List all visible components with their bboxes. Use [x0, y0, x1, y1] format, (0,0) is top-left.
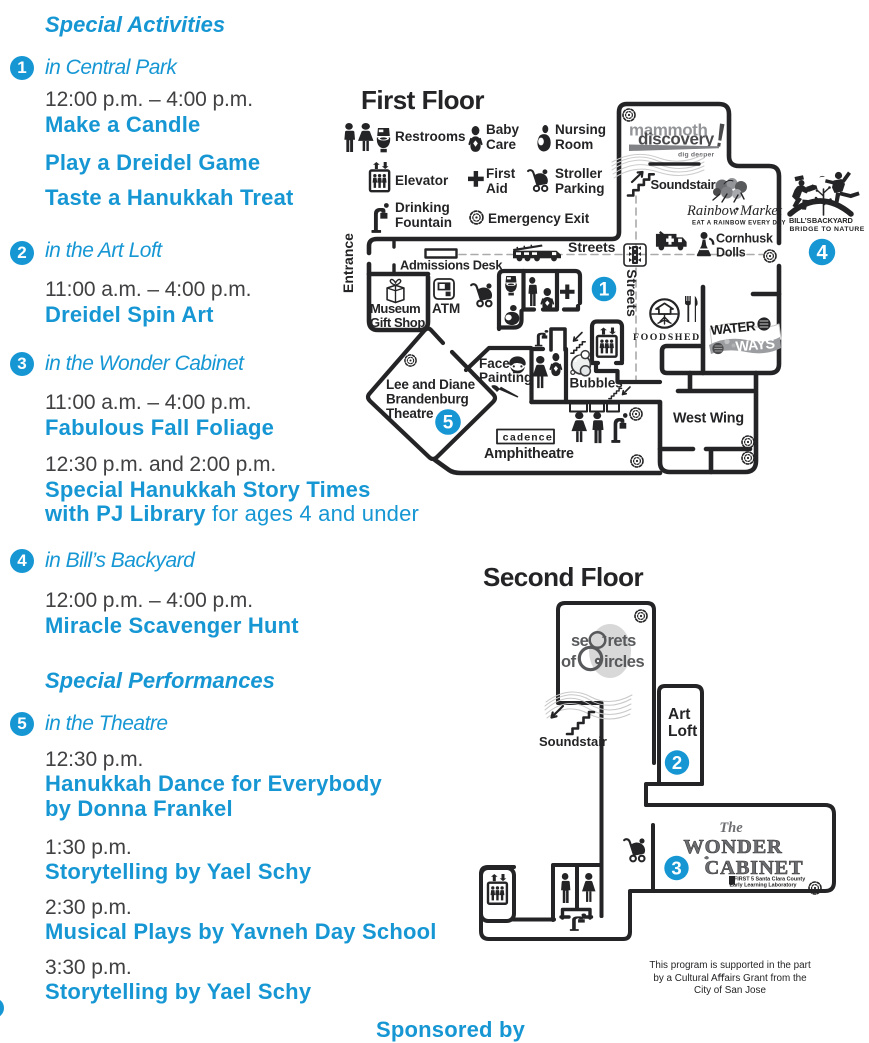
svg-text:Bubbles: Bubbles	[570, 376, 623, 391]
svg-text:of: of	[561, 653, 577, 671]
svg-text:FOODSHED: FOODSHED	[633, 332, 701, 343]
svg-text:ATM: ATM	[432, 301, 460, 316]
svg-text:Loft: Loft	[668, 723, 697, 740]
svg-text:Parking: Parking	[555, 181, 605, 196]
svg-text:Fountain: Fountain	[395, 215, 452, 230]
svg-text:Nursing: Nursing	[555, 122, 606, 137]
svg-text:Face: Face	[479, 356, 510, 371]
svg-text:Lee and Diane: Lee and Diane	[386, 377, 476, 392]
svg-text:cadence: cadence	[503, 433, 553, 445]
svg-text:2: 2	[672, 752, 682, 773]
svg-text:West Wing: West Wing	[673, 411, 744, 427]
svg-text:rets: rets	[608, 632, 637, 650]
svg-text:Elevator: Elevator	[395, 173, 449, 188]
svg-text:Streets: Streets	[568, 239, 616, 255]
svg-text:Aid: Aid	[486, 181, 508, 196]
svg-text:Soundstair: Soundstair	[651, 177, 716, 192]
svg-text:EAT A RAINBOW EVERY DAY: EAT A RAINBOW EVERY DAY	[692, 221, 786, 227]
svg-text:Market: Market	[739, 203, 783, 219]
svg-text:BRIDGE TO NATURE: BRIDGE TO NATURE	[790, 226, 865, 233]
svg-text:Baby: Baby	[486, 122, 520, 137]
svg-text:Emergency Exit: Emergency Exit	[488, 211, 590, 226]
svg-text:Early Learning Laboratory: Early Learning Laboratory	[729, 883, 796, 889]
svg-text:The: The	[719, 820, 743, 836]
svg-text:Cornhusk: Cornhusk	[716, 232, 773, 246]
svg-text:3: 3	[671, 858, 681, 879]
svg-text:Entrance: Entrance	[340, 233, 356, 293]
svg-text:Rainbow: Rainbow	[686, 203, 739, 219]
svg-text:ircles: ircles	[604, 653, 644, 671]
svg-text:WONDER: WONDER	[683, 836, 782, 858]
svg-text:Soundstair: Soundstair	[539, 734, 607, 749]
svg-text:Theatre: Theatre	[386, 406, 434, 421]
svg-text:WAYS: WAYS	[735, 336, 776, 355]
svg-text:First: First	[486, 166, 516, 181]
svg-text:Gift Shop: Gift Shop	[370, 315, 425, 330]
svg-text:Admissions Desk: Admissions Desk	[400, 258, 503, 273]
svg-text:Dolls: Dolls	[716, 246, 746, 260]
svg-text:4: 4	[816, 242, 828, 264]
svg-text:Painting: Painting	[479, 370, 532, 385]
svg-text:Amphitheatre: Amphitheatre	[484, 446, 574, 462]
svg-text:Art: Art	[668, 706, 690, 723]
svg-text:Stroller: Stroller	[555, 166, 603, 181]
svg-text:Museum: Museum	[370, 301, 420, 316]
svg-text:Drinking: Drinking	[395, 200, 450, 215]
svg-text:Brandenburg: Brandenburg	[386, 392, 469, 407]
svg-text:Care: Care	[486, 137, 517, 152]
svg-text:Room: Room	[555, 137, 593, 152]
svg-text:Streets: Streets	[624, 269, 640, 317]
svg-text:Restrooms: Restrooms	[395, 129, 466, 144]
svg-text:BILL’S BACKYARD: BILL’S BACKYARD	[789, 216, 853, 225]
svg-text:1: 1	[599, 280, 610, 301]
svg-text:5: 5	[443, 413, 454, 434]
